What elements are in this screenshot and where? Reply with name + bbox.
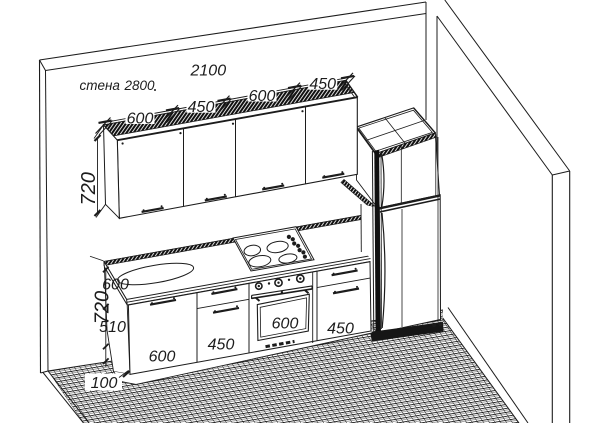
svg-text:510: 510 (99, 319, 126, 336)
svg-text:2800: 2800 (124, 78, 156, 93)
svg-text:100: 100 (91, 375, 118, 392)
svg-text:450: 450 (309, 76, 336, 93)
svg-text:450: 450 (208, 337, 235, 354)
svg-text:600: 600 (249, 88, 276, 105)
svg-text:450: 450 (188, 99, 215, 116)
svg-text:2100: 2100 (190, 62, 227, 79)
svg-text:600: 600 (272, 315, 299, 332)
svg-text:450: 450 (327, 320, 354, 337)
svg-text:600: 600 (127, 110, 154, 127)
svg-text:стена: стена (80, 78, 121, 93)
svg-text:600: 600 (149, 349, 176, 366)
svg-text:720: 720 (78, 172, 100, 205)
